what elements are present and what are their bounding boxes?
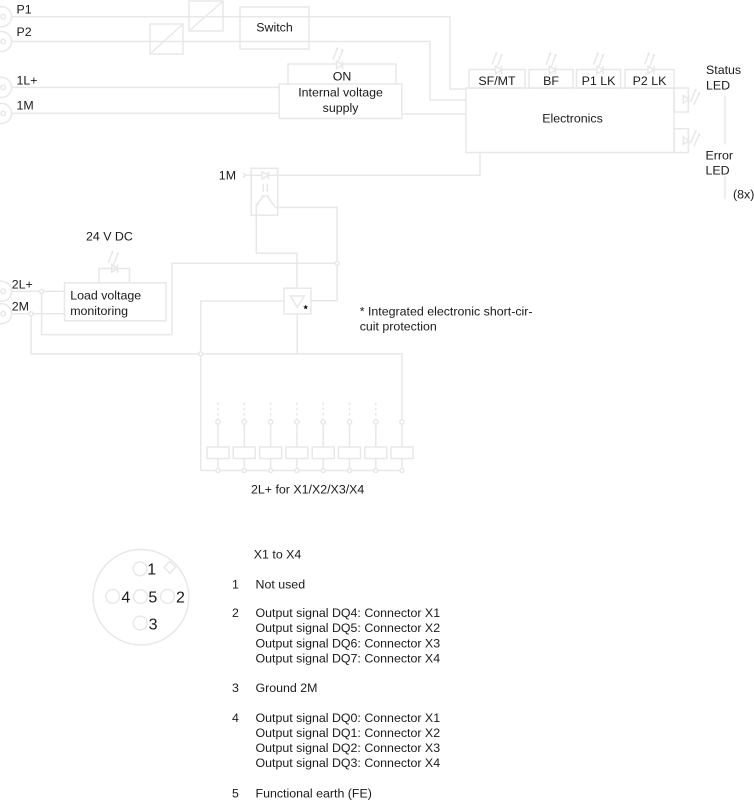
svg-text:Internal voltage: Internal voltage: [298, 86, 383, 100]
svg-text:2: 2: [232, 606, 239, 620]
svg-text:Electronics: Electronics: [542, 112, 603, 126]
svg-text:2L+: 2L+: [12, 277, 33, 291]
svg-text:3: 3: [232, 681, 239, 695]
svg-text:Output signal DQ5: Connector X: Output signal DQ5: Connector X2: [256, 621, 441, 635]
svg-text:5: 5: [232, 787, 239, 800]
svg-text:P2: P2: [17, 25, 32, 39]
svg-text:Output signal DQ0: Connector X: Output signal DQ0: Connector X1: [256, 711, 441, 725]
svg-text:Functional earth (FE): Functional earth (FE): [256, 787, 372, 800]
svg-text:Output signal DQ3: Connector X: Output signal DQ3: Connector X4: [256, 756, 441, 770]
svg-text:LED: LED: [706, 78, 730, 92]
svg-text:Load voltage: Load voltage: [70, 289, 141, 303]
svg-text:Switch: Switch: [256, 20, 293, 34]
svg-text:2M: 2M: [12, 300, 29, 314]
svg-text:P2 LK: P2 LK: [633, 74, 667, 88]
svg-text:Not used: Not used: [256, 577, 306, 591]
svg-text:1M: 1M: [219, 169, 236, 183]
svg-text:BF: BF: [543, 74, 559, 88]
svg-text:Ground 2M: Ground 2M: [256, 681, 318, 695]
svg-text:P1 LK: P1 LK: [582, 74, 616, 88]
svg-text:ON: ON: [333, 70, 352, 84]
svg-text:X1 to X4: X1 to X4: [254, 547, 302, 561]
svg-text:supply: supply: [323, 101, 360, 115]
svg-text:1M: 1M: [17, 99, 34, 113]
svg-text:Output signal DQ4: Connector X: Output signal DQ4: Connector X1: [256, 606, 441, 620]
svg-text:cuit protection: cuit protection: [360, 320, 437, 334]
svg-text:2: 2: [176, 589, 185, 606]
svg-text:Output signal DQ7: Connector X: Output signal DQ7: Connector X4: [256, 652, 441, 666]
svg-text:Error: Error: [706, 148, 734, 162]
svg-text:4: 4: [232, 711, 239, 725]
svg-text:P1: P1: [17, 3, 32, 17]
svg-text:Output signal DQ2: Connector X: Output signal DQ2: Connector X3: [256, 741, 441, 755]
svg-text:SF/MT: SF/MT: [478, 74, 516, 88]
svg-text:Output signal DQ6: Connector X: Output signal DQ6: Connector X3: [256, 636, 441, 650]
svg-text:2L+ for X1/X2/X3/X4: 2L+ for X1/X2/X3/X4: [251, 482, 364, 496]
svg-text:4: 4: [121, 589, 130, 606]
svg-text:* Integrated electronic short-: * Integrated electronic short-cir-: [360, 305, 533, 319]
svg-text:1: 1: [232, 577, 239, 591]
svg-text:1L+: 1L+: [17, 73, 38, 87]
svg-text:1: 1: [147, 561, 156, 578]
svg-text:5: 5: [148, 589, 157, 606]
svg-text:LED: LED: [706, 163, 730, 177]
svg-text:(8x): (8x): [733, 187, 754, 201]
svg-text:Status: Status: [706, 63, 741, 77]
svg-text:24 V DC: 24 V DC: [86, 230, 133, 244]
svg-text:Output signal DQ1: Connector X: Output signal DQ1: Connector X2: [256, 726, 441, 740]
svg-text:3: 3: [149, 616, 158, 633]
svg-text:monitoring: monitoring: [70, 304, 128, 318]
